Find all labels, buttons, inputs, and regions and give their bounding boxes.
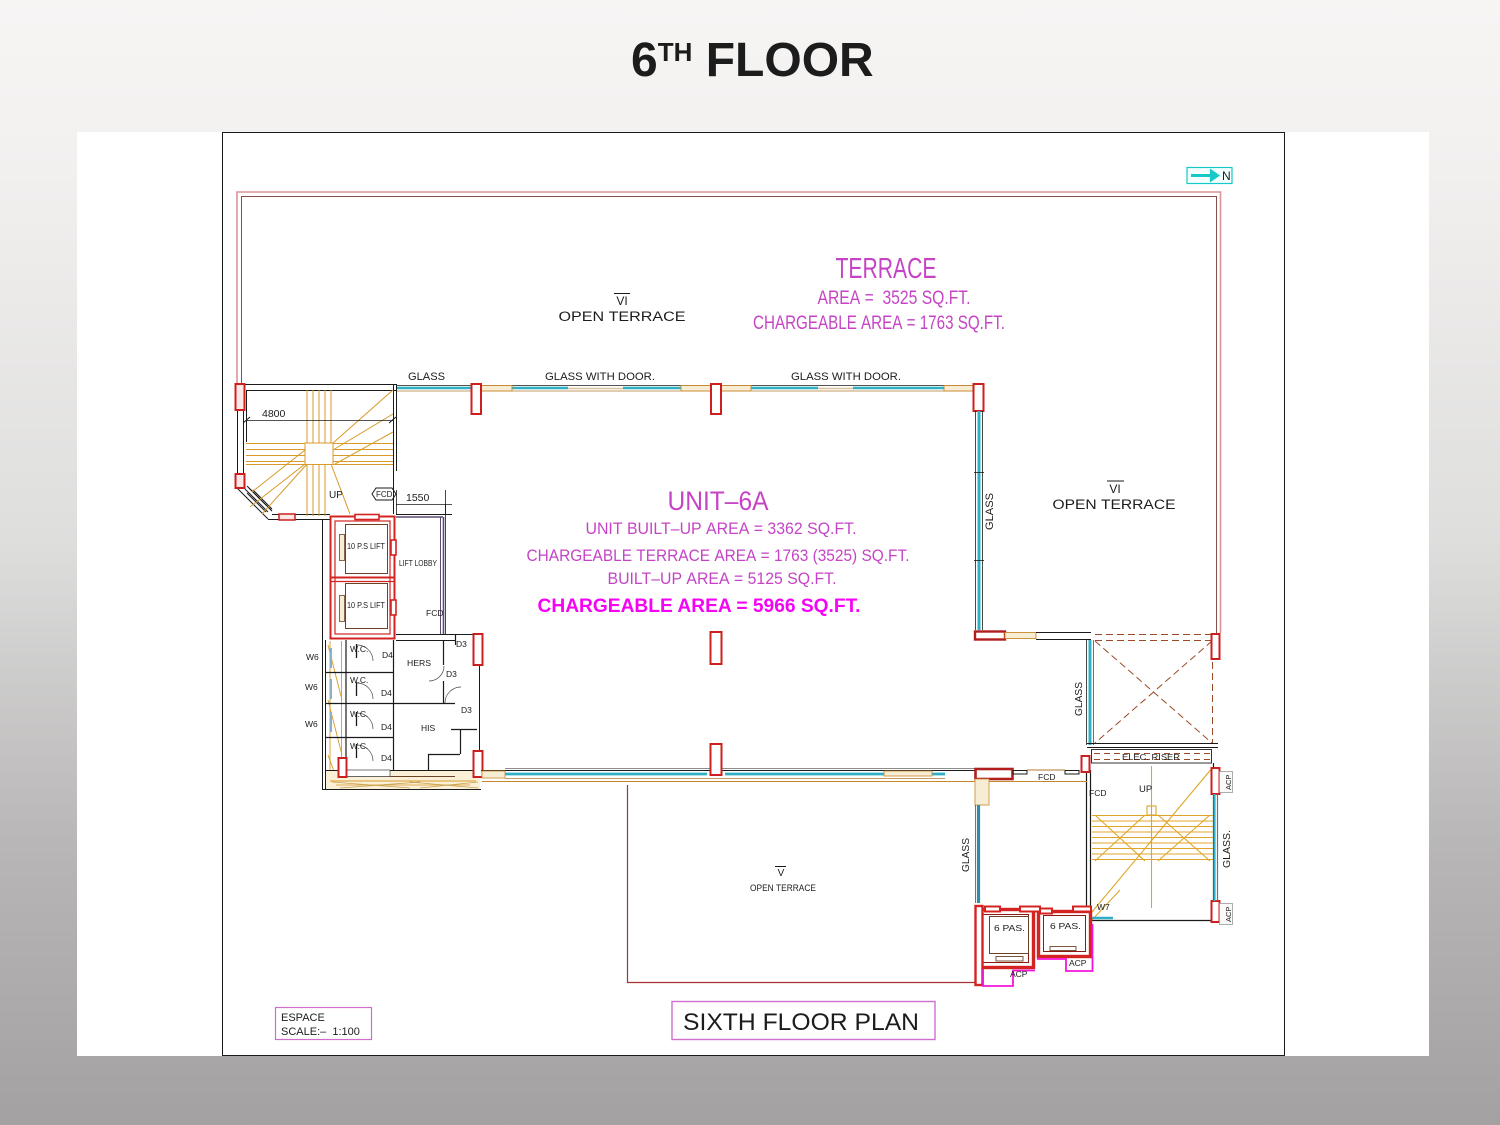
svg-text:BUILT–UP AREA = 5125 SQ.FT.: BUILT–UP AREA = 5125 SQ.FT. (608, 569, 837, 588)
svg-text:GLASS: GLASS (1074, 682, 1085, 716)
svg-text:OPEN TERRACE: OPEN TERRACE (559, 309, 686, 324)
svg-text:FCD: FCD (426, 608, 443, 618)
svg-text:FCD: FCD (1089, 788, 1106, 798)
svg-text:6TH FLOOR: 6TH FLOOR (631, 34, 874, 87)
svg-text:UNIT–6A: UNIT–6A (668, 486, 769, 516)
svg-text:UP: UP (329, 490, 343, 501)
svg-text:FCD: FCD (376, 490, 393, 499)
svg-text:CHARGEABLE TERRACE AREA = 1763: CHARGEABLE TERRACE AREA = 1763 (3525) SQ… (527, 546, 910, 565)
svg-text:SCALE:– 1:100: SCALE:– 1:100 (281, 1026, 360, 1038)
svg-text:OPEN TERRACE: OPEN TERRACE (750, 883, 816, 893)
svg-text:D3: D3 (446, 669, 457, 679)
svg-text:ELEC. RISER: ELEC. RISER (1122, 752, 1180, 762)
svg-text:UP: UP (1139, 784, 1152, 795)
svg-text:GLASS WITH DOOR.: GLASS WITH DOOR. (545, 371, 655, 383)
svg-text:OPEN TERRACE: OPEN TERRACE (1053, 497, 1176, 512)
svg-text:VI: VI (1109, 482, 1120, 496)
svg-text:VI: VI (616, 294, 627, 308)
svg-text:HERS: HERS (407, 658, 431, 668)
svg-text:D3: D3 (461, 705, 472, 715)
svg-text:W6: W6 (305, 682, 318, 692)
svg-text:N: N (1222, 169, 1231, 183)
svg-text:D3: D3 (456, 639, 467, 649)
svg-text:ACP: ACP (1010, 969, 1028, 979)
svg-text:D4: D4 (381, 722, 392, 732)
svg-text:CHARGEABLE AREA = 5966 SQ.FT.: CHARGEABLE AREA = 5966 SQ.FT. (538, 596, 861, 617)
svg-text:GLASS: GLASS (408, 371, 445, 383)
svg-text:W.C.: W.C. (350, 741, 368, 751)
svg-text:CHARGEABLE AREA = 1763 SQ.FT.: CHARGEABLE AREA = 1763 SQ.FT. (753, 313, 1005, 334)
svg-text:TERRACE: TERRACE (836, 253, 937, 285)
svg-text:ESPACE: ESPACE (281, 1012, 325, 1024)
svg-text:ACP: ACP (1069, 958, 1087, 968)
svg-text:AREA = 3525 SQ.FT.: AREA = 3525 SQ.FT. (818, 288, 971, 309)
svg-text:W6: W6 (305, 719, 318, 729)
svg-text:UNIT BUILT–UP AREA = 3362 SQ.F: UNIT BUILT–UP AREA = 3362 SQ.FT. (586, 519, 857, 538)
svg-text:V: V (778, 868, 785, 879)
svg-text:4800: 4800 (262, 408, 286, 420)
svg-text:GLASS: GLASS (984, 493, 996, 530)
svg-text:6 PAS.: 6 PAS. (994, 923, 1025, 933)
svg-text:ACP: ACP (1224, 775, 1233, 790)
svg-text:D4: D4 (382, 650, 393, 660)
svg-text:W.C.: W.C. (350, 709, 368, 719)
svg-text:W7: W7 (1097, 902, 1110, 912)
svg-text:D4: D4 (381, 688, 392, 698)
svg-text:W.C.: W.C. (350, 644, 368, 654)
svg-text:W.C.: W.C. (350, 675, 368, 685)
svg-text:10 P.S LIFT: 10 P.S LIFT (347, 600, 385, 610)
svg-text:GLASS.: GLASS. (1222, 830, 1233, 868)
svg-text:LIFT LOBBY: LIFT LOBBY (399, 558, 437, 568)
svg-text:GLASS WITH DOOR.: GLASS WITH DOOR. (791, 371, 901, 383)
svg-text:FCD: FCD (1038, 772, 1055, 782)
svg-text:ACP: ACP (1224, 907, 1233, 922)
svg-text:GLASS: GLASS (961, 838, 972, 872)
svg-text:6 PAS.: 6 PAS. (1050, 921, 1081, 931)
svg-text:HIS: HIS (421, 723, 436, 733)
svg-text:D4: D4 (381, 753, 392, 763)
svg-text:SIXTH FLOOR PLAN: SIXTH FLOOR PLAN (683, 1009, 919, 1036)
svg-text:10 P.S LIFT: 10 P.S LIFT (347, 541, 385, 551)
svg-text:W6: W6 (306, 652, 319, 662)
svg-text:1550: 1550 (406, 492, 430, 504)
